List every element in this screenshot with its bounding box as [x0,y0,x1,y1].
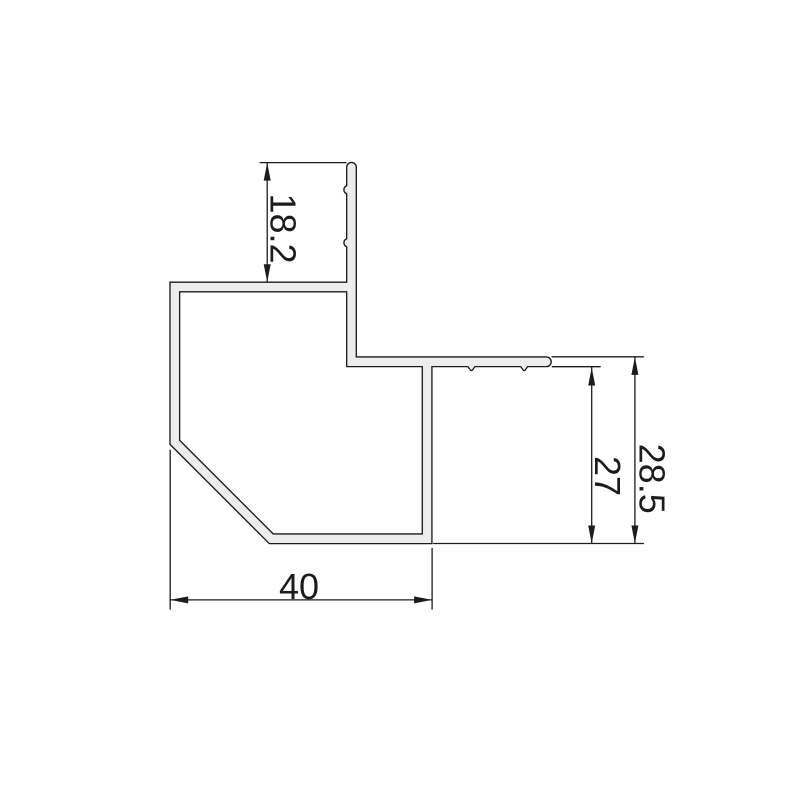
svg-text:18.2: 18.2 [263,193,304,263]
svg-text:40: 40 [279,566,319,607]
svg-text:28.5: 28.5 [632,444,673,514]
svg-text:27: 27 [587,456,628,496]
